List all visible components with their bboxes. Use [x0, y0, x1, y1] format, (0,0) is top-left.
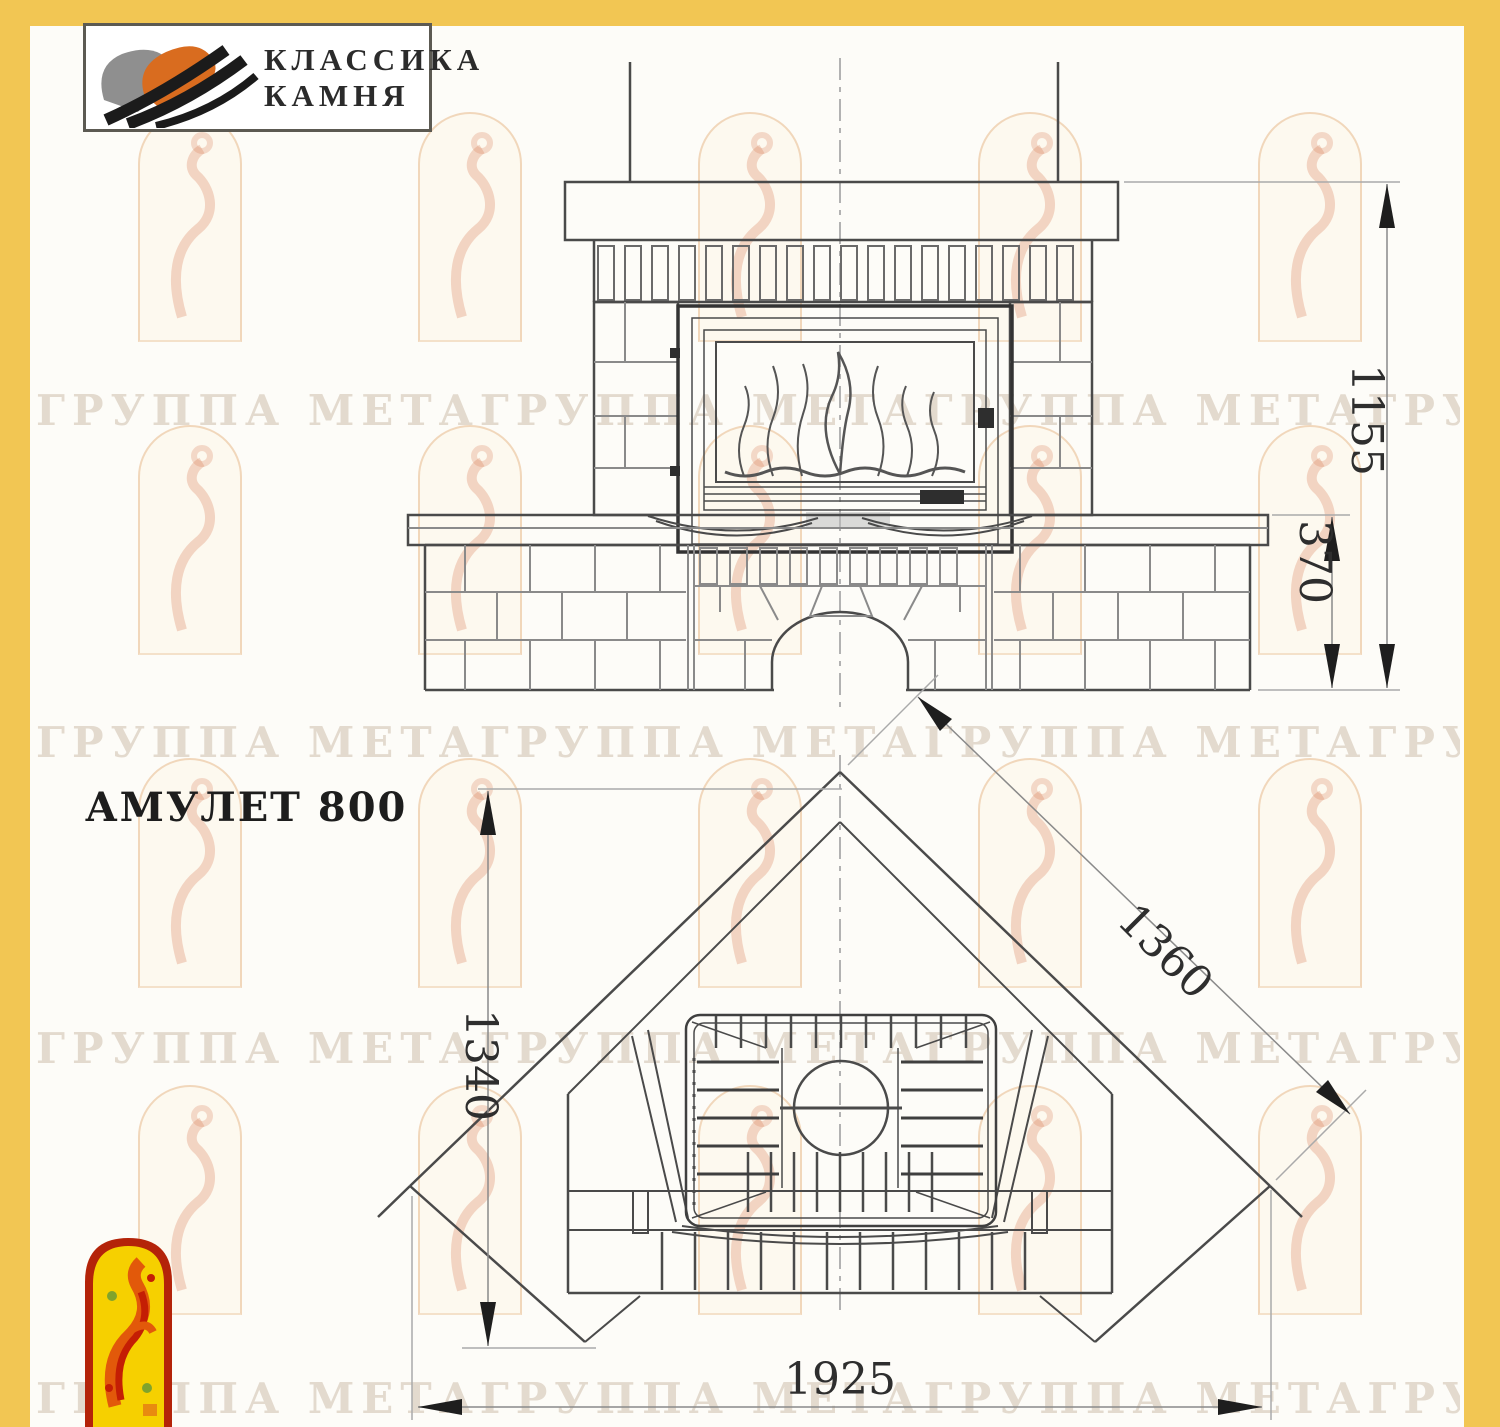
dim-label-total-height: 1155 — [1341, 364, 1392, 476]
front-elevation-view: 1155 370 — [408, 58, 1400, 712]
hinge-top — [670, 348, 680, 358]
right-pier — [1010, 302, 1092, 515]
page-frame-left — [0, 0, 30, 1427]
product-title: АМУЛЕТ 800 — [85, 784, 407, 831]
mantel-dentils — [598, 246, 1073, 300]
flames — [725, 352, 965, 476]
page-frame-right — [1464, 0, 1500, 1427]
dim-label-diagonal: 1360 — [1108, 894, 1223, 1009]
wood-niche-arch — [760, 586, 922, 690]
arrow-up-icon — [1379, 184, 1395, 228]
insert-front-dentils — [748, 1152, 932, 1212]
arrow-up-icon — [480, 791, 496, 835]
left-pier — [594, 302, 678, 515]
bench-front-dentils — [662, 1232, 1025, 1290]
arrow-left-icon — [418, 1399, 462, 1415]
base-masonry — [425, 545, 1250, 690]
arrow-right-icon — [1218, 1399, 1262, 1415]
arrow-down-icon — [1324, 644, 1340, 688]
dim-label-depth: 1340 — [455, 1009, 506, 1121]
technical-drawing: 1155 370 — [0, 0, 1500, 1427]
stone-logo-icon — [86, 28, 264, 128]
dimension-1360: 1360 — [848, 675, 1366, 1180]
dim-label-width: 1925 — [784, 1354, 896, 1405]
dimension-1925: 1925 — [412, 1190, 1271, 1420]
brand-name-line2: КАМНЯ — [264, 78, 484, 114]
brand-name-line1: КЛАССИКА — [264, 42, 484, 78]
hinge-bottom — [670, 466, 680, 476]
control-lever — [920, 490, 964, 504]
door-handle — [978, 408, 994, 428]
dimension-1155: 1155 — [1124, 182, 1400, 690]
arrow-down-icon — [1379, 644, 1395, 688]
firebird-emblem — [85, 1238, 172, 1427]
dim-label-bench-height: 370 — [1289, 520, 1340, 604]
page: ГРУППА МЕТАГРУППА МЕТАГРУППА МЕТАГРУППА … — [0, 0, 1500, 1427]
mantel-shelf — [565, 182, 1118, 240]
arrow-down-icon — [480, 1302, 496, 1346]
dimension-370: 370 — [1272, 515, 1350, 688]
plan-view: 1340 1360 1925 — [378, 675, 1366, 1420]
brand-logo: КЛАССИКА КАМНЯ — [83, 23, 432, 132]
dimension-1340: 1340 — [455, 789, 842, 1348]
